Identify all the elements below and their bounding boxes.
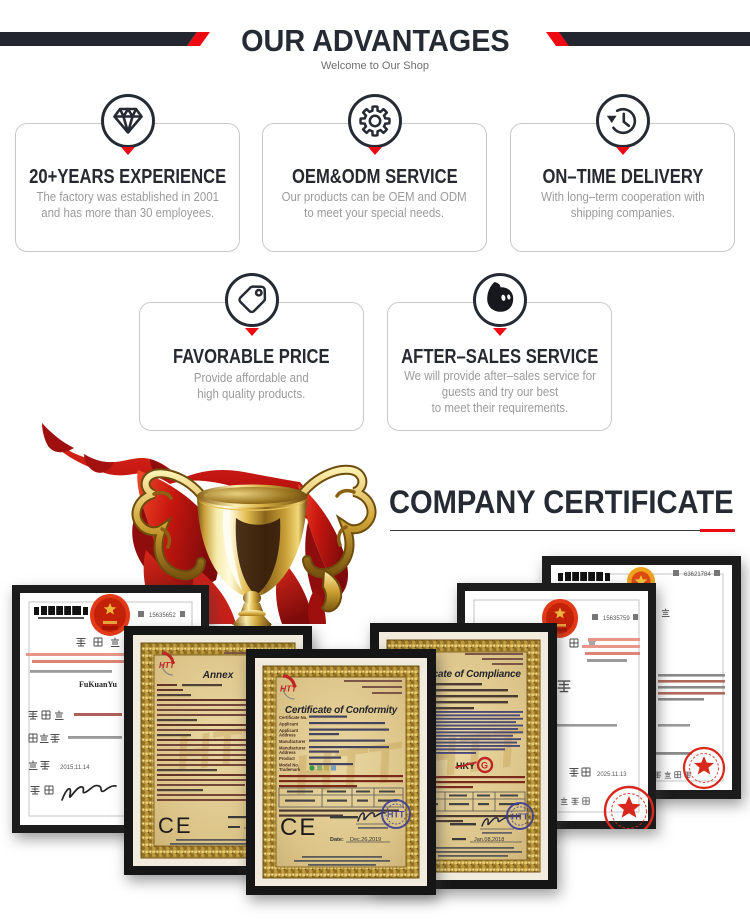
svg-text:63621784: 63621784 xyxy=(684,572,711,578)
svg-text:HTT: HTT xyxy=(387,810,405,820)
svg-text:FuKuanYu: FuKuanYu xyxy=(79,680,118,689)
svg-text:Product: Product xyxy=(279,756,295,761)
svg-text:Certificate No.: Certificate No. xyxy=(279,715,307,720)
svg-text:2015.11.14: 2015.11.14 xyxy=(60,765,90,771)
svg-text:HTT: HTT xyxy=(280,684,297,694)
svg-text:Address: Address xyxy=(279,733,296,738)
svg-text:15635759: 15635759 xyxy=(603,616,630,622)
svg-text:15635652: 15635652 xyxy=(149,613,176,619)
svg-text:CE: CE xyxy=(158,813,193,838)
svg-text:Annex: Annex xyxy=(202,670,234,681)
svg-text:2025.11.13: 2025.11.13 xyxy=(597,772,627,778)
svg-text:CE: CE xyxy=(280,814,317,841)
svg-text:Date:: Date: xyxy=(330,837,344,843)
svg-text:Applicant: Applicant xyxy=(279,722,299,727)
svg-text:HTT: HTT xyxy=(159,661,176,670)
svg-text:Manufacturer: Manufacturer xyxy=(279,739,306,744)
svg-text:G: G xyxy=(481,761,488,771)
svg-text:Trademark: Trademark xyxy=(279,767,301,772)
svg-text:HTT: HTT xyxy=(512,812,529,822)
svg-text:Address: Address xyxy=(279,750,296,755)
